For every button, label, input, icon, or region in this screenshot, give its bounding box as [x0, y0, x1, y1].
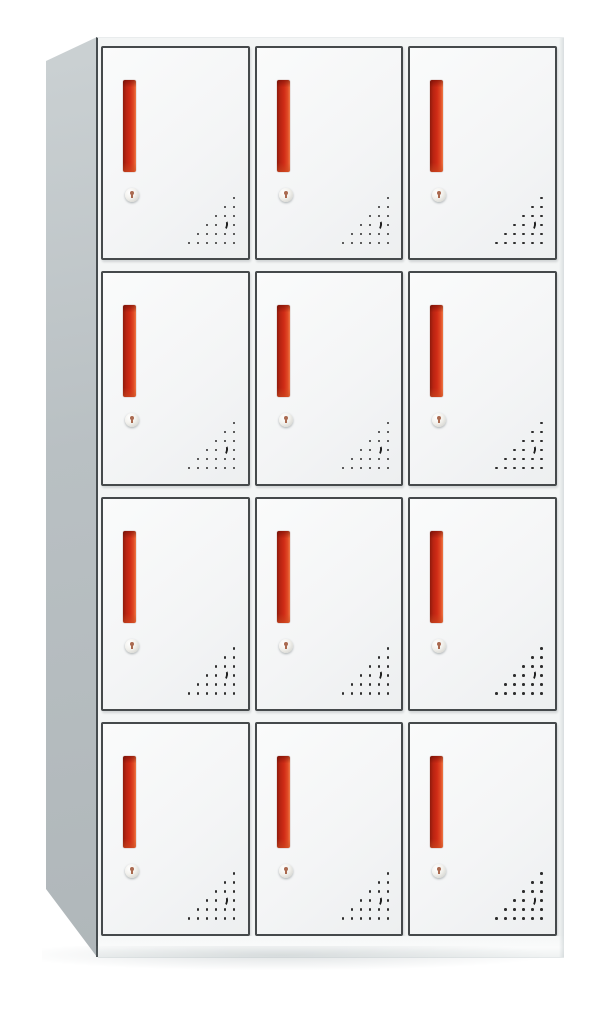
vent-hole-icon — [513, 674, 516, 677]
locker-door-r3c3 — [408, 497, 557, 711]
keyhole-lock — [279, 188, 293, 202]
vent-hole-icon — [378, 908, 381, 911]
vent-hole-icon — [233, 431, 236, 434]
vent-hole-icon — [206, 233, 209, 236]
vent-hole-icon — [360, 467, 363, 470]
vent-slot — [194, 464, 203, 473]
vent-slot — [356, 455, 365, 464]
vent-hole-icon — [387, 467, 390, 470]
vent-slot — [230, 202, 239, 211]
vent-hole-icon — [540, 440, 543, 443]
vent-slot — [347, 455, 356, 464]
vent-hole-icon — [224, 692, 227, 695]
vent-hole-icon — [378, 656, 381, 659]
keyhole-icon — [130, 416, 134, 420]
vent-hole-icon — [531, 890, 534, 893]
vent-slot — [501, 238, 510, 247]
vent-hole-icon — [215, 233, 218, 236]
vent-slot — [383, 238, 392, 247]
vent-hole-icon — [531, 908, 534, 911]
vent-row — [374, 428, 392, 437]
keyhole-icon — [437, 191, 441, 195]
vent-hole-icon — [206, 224, 209, 227]
keyhole-lock — [125, 864, 139, 878]
vent-hole-icon — [233, 206, 236, 209]
vent-slot — [194, 238, 203, 247]
vent-slot — [230, 905, 239, 914]
vent-row — [221, 202, 239, 211]
vent-slot — [221, 464, 230, 473]
vent-hole-icon — [206, 458, 209, 461]
vent-hole-icon — [215, 692, 218, 695]
vent-slot — [230, 455, 239, 464]
vent-hole-icon — [387, 431, 390, 434]
vent-hole-icon — [360, 674, 363, 677]
vent-row — [528, 653, 546, 662]
vent-row — [185, 238, 239, 247]
vent-slot — [194, 229, 203, 238]
vent-hole-icon — [387, 908, 390, 911]
keyhole-icon — [437, 867, 441, 871]
vent-slot — [374, 905, 383, 914]
vent-slot — [356, 896, 365, 905]
vent-row — [356, 446, 392, 455]
vent-row — [537, 419, 546, 428]
vent-slot — [212, 671, 221, 680]
vent-slot — [356, 220, 365, 229]
vent-row — [185, 914, 239, 923]
vent-hole-icon — [531, 242, 534, 245]
keyhole-lock — [125, 413, 139, 427]
vent-slot — [510, 689, 519, 698]
vent-hole-icon — [504, 458, 507, 461]
vent-slot — [501, 680, 510, 689]
vent-hole-icon — [233, 917, 236, 920]
vent-hole-icon — [387, 890, 390, 893]
vent-hole-icon — [522, 665, 525, 668]
vent-hole-icon — [504, 917, 507, 920]
vent-slot — [338, 464, 347, 473]
vent-row — [221, 653, 239, 662]
vent-slot — [365, 680, 374, 689]
vent-hole-icon — [233, 440, 236, 443]
product-photo-scene — [0, 0, 605, 1009]
vent-slot — [510, 220, 519, 229]
vent-slot — [519, 680, 528, 689]
vent-slot — [537, 671, 546, 680]
cabinet-front-face — [96, 37, 564, 957]
vent-slot — [501, 905, 510, 914]
vent-slot — [510, 464, 519, 473]
vent-slot — [212, 662, 221, 671]
vent-slot — [537, 653, 546, 662]
vent-hole-icon — [233, 692, 236, 695]
keyhole-icon — [437, 416, 441, 420]
vent-hole-icon — [369, 665, 372, 668]
vent-slot — [230, 644, 239, 653]
vent-slot — [212, 896, 221, 905]
vent-slot — [383, 437, 392, 446]
keyhole-icon — [284, 416, 288, 420]
vent-slot — [203, 446, 212, 455]
vent-hole-icon — [378, 890, 381, 893]
vent-row — [230, 419, 239, 428]
floor-shadow — [42, 946, 574, 972]
vent-slot — [383, 220, 392, 229]
vent-slot — [383, 914, 392, 923]
vent-slot — [374, 202, 383, 211]
vent-slot — [519, 238, 528, 247]
vent-slot — [230, 419, 239, 428]
vent-row — [221, 428, 239, 437]
vent-slot — [212, 680, 221, 689]
vent-slot — [374, 914, 383, 923]
vent-slot — [347, 464, 356, 473]
vent-row — [347, 905, 392, 914]
vent-hole-icon — [197, 458, 200, 461]
vent-hole-icon — [387, 233, 390, 236]
vent-slot — [519, 671, 528, 680]
vent-slot — [230, 896, 239, 905]
vent-hole-icon — [215, 683, 218, 686]
vent-slot — [230, 428, 239, 437]
vent-slot — [519, 689, 528, 698]
door-handle-icon — [277, 80, 290, 172]
vent-slot — [356, 905, 365, 914]
vent-hole-icon — [540, 917, 543, 920]
vent-slot — [383, 464, 392, 473]
vent-row — [203, 896, 239, 905]
vent-hole-icon — [224, 458, 227, 461]
vent-slot — [230, 446, 239, 455]
vent-slot — [230, 878, 239, 887]
vent-hole-icon — [224, 908, 227, 911]
keyhole-icon — [130, 642, 134, 646]
vent-row — [194, 455, 239, 464]
vent-hole-icon — [387, 197, 390, 200]
vent-hole-icon — [378, 467, 381, 470]
vent-row — [374, 202, 392, 211]
vent-slot — [537, 193, 546, 202]
vent-slot — [501, 229, 510, 238]
vent-hole-icon — [342, 917, 345, 920]
vent-hole-icon — [369, 449, 372, 452]
vent-hole-icon — [233, 422, 236, 425]
vent-slot — [365, 662, 374, 671]
vent-hole-icon — [351, 692, 354, 695]
vent-hole-icon — [360, 242, 363, 245]
locker-door-r4c3 — [408, 722, 557, 936]
vent-slot — [212, 464, 221, 473]
vent-hole-icon — [387, 899, 390, 902]
vent-holes — [338, 419, 392, 473]
vent-slot — [510, 914, 519, 923]
vent-hole-icon — [233, 908, 236, 911]
vent-hole-icon — [495, 692, 498, 695]
vent-slot — [230, 869, 239, 878]
vent-slot — [347, 689, 356, 698]
vent-row — [501, 455, 546, 464]
vent-hole-icon — [206, 242, 209, 245]
vent-hole-icon — [224, 683, 227, 686]
vent-row — [501, 229, 546, 238]
vent-slot — [212, 887, 221, 896]
vent-slot — [194, 455, 203, 464]
vent-slot — [383, 869, 392, 878]
vent-hole-icon — [522, 908, 525, 911]
vent-hole-icon — [540, 449, 543, 452]
vent-slot — [510, 905, 519, 914]
vent-row — [510, 896, 546, 905]
vent-hole-icon — [233, 683, 236, 686]
vent-slot — [365, 220, 374, 229]
vent-slot — [510, 671, 519, 680]
vent-hole-icon — [233, 899, 236, 902]
vent-slot — [528, 446, 537, 455]
door-handle-icon — [123, 756, 136, 848]
locker-door-r2c1 — [101, 271, 250, 485]
vent-hole-icon — [387, 440, 390, 443]
vent-slot — [383, 446, 392, 455]
vent-slot — [374, 689, 383, 698]
vent-holes — [338, 869, 392, 923]
vent-slot — [203, 229, 212, 238]
vent-hole-icon — [215, 440, 218, 443]
vent-row — [501, 905, 546, 914]
vent-hole-icon — [224, 881, 227, 884]
vent-slot — [365, 671, 374, 680]
vent-hole-icon — [522, 440, 525, 443]
vent-hole-icon — [540, 422, 543, 425]
door-handle-icon — [123, 80, 136, 172]
vent-slot — [383, 689, 392, 698]
vent-slot — [528, 905, 537, 914]
vent-hole-icon — [540, 233, 543, 236]
vent-hole-icon — [233, 665, 236, 668]
vent-row — [356, 671, 392, 680]
vent-slot — [230, 437, 239, 446]
vent-slot — [338, 238, 347, 247]
vent-row — [347, 455, 392, 464]
vent-hole-icon — [369, 233, 372, 236]
vent-row — [374, 653, 392, 662]
vent-hole-icon — [206, 899, 209, 902]
vent-slot — [347, 680, 356, 689]
vent-hole-icon — [531, 206, 534, 209]
vent-row — [492, 689, 546, 698]
vent-slot — [501, 464, 510, 473]
vent-hole-icon — [233, 449, 236, 452]
vent-slot — [221, 896, 230, 905]
vent-slot — [230, 211, 239, 220]
vent-row — [383, 869, 392, 878]
vent-row — [365, 211, 392, 220]
vent-slot — [221, 446, 230, 455]
vent-hole-icon — [495, 467, 498, 470]
vent-slot — [510, 680, 519, 689]
vent-hole-icon — [540, 215, 543, 218]
vent-slot — [519, 887, 528, 896]
vent-hole-icon — [233, 872, 236, 875]
vent-slot — [221, 229, 230, 238]
vent-holes — [338, 644, 392, 698]
vent-hole-icon — [522, 692, 525, 695]
vent-holes — [492, 644, 546, 698]
vent-hole-icon — [233, 881, 236, 884]
vent-slot — [528, 914, 537, 923]
vent-hole-icon — [540, 656, 543, 659]
door-handle-icon — [277, 756, 290, 848]
vent-slot — [194, 689, 203, 698]
vent-holes — [185, 419, 239, 473]
vent-slot — [528, 238, 537, 247]
vent-row — [194, 680, 239, 689]
vent-slot — [519, 455, 528, 464]
vent-row — [528, 428, 546, 437]
vent-hole-icon — [387, 674, 390, 677]
vent-slot — [194, 905, 203, 914]
vent-row — [519, 887, 546, 896]
vent-hole-icon — [387, 422, 390, 425]
keyhole-icon — [437, 642, 441, 646]
vent-hole-icon — [540, 458, 543, 461]
vent-slot — [365, 464, 374, 473]
vent-slot — [356, 914, 365, 923]
vent-slot — [537, 419, 546, 428]
vent-slot — [510, 229, 519, 238]
vent-hole-icon — [387, 692, 390, 695]
vent-hole-icon — [387, 872, 390, 875]
vent-hole-icon — [522, 449, 525, 452]
vent-hole-icon — [540, 890, 543, 893]
vent-hole-icon — [495, 242, 498, 245]
vent-slot — [347, 229, 356, 238]
vent-hole-icon — [513, 908, 516, 911]
vent-hole-icon — [188, 467, 191, 470]
vent-slot — [374, 229, 383, 238]
vent-hole-icon — [504, 908, 507, 911]
vent-hole-icon — [540, 431, 543, 434]
vent-row — [492, 914, 546, 923]
vent-hole-icon — [531, 656, 534, 659]
vent-slot — [374, 887, 383, 896]
vent-hole-icon — [351, 458, 354, 461]
vent-slot — [501, 455, 510, 464]
vent-slot — [221, 211, 230, 220]
vent-row — [492, 238, 546, 247]
vent-hole-icon — [206, 467, 209, 470]
vent-slot — [528, 464, 537, 473]
vent-holes — [492, 193, 546, 247]
vent-hole-icon — [233, 656, 236, 659]
vent-hole-icon — [522, 899, 525, 902]
vent-hole-icon — [513, 242, 516, 245]
locker-door-r2c2 — [255, 271, 404, 485]
keyhole-icon — [284, 867, 288, 871]
vent-slot — [221, 878, 230, 887]
vent-hole-icon — [360, 224, 363, 227]
vent-hole-icon — [540, 872, 543, 875]
vent-hole-icon — [197, 242, 200, 245]
vent-hole-icon — [351, 467, 354, 470]
vent-slot — [383, 896, 392, 905]
vent-hole-icon — [233, 224, 236, 227]
vent-hole-icon — [540, 899, 543, 902]
keyhole-lock — [432, 188, 446, 202]
vent-slot — [537, 437, 546, 446]
vent-hole-icon — [233, 647, 236, 650]
vent-slot — [365, 446, 374, 455]
vent-hole-icon — [215, 467, 218, 470]
vent-hole-icon — [206, 683, 209, 686]
vent-hole-icon — [342, 692, 345, 695]
keyhole-icon — [284, 191, 288, 195]
vent-hole-icon — [215, 449, 218, 452]
vent-row — [203, 671, 239, 680]
vent-holes — [185, 193, 239, 247]
vent-hole-icon — [504, 683, 507, 686]
vent-slot — [221, 455, 230, 464]
vent-slot — [212, 446, 221, 455]
vent-slot — [212, 905, 221, 914]
vent-hole-icon — [215, 215, 218, 218]
locker-door-r4c2 — [255, 722, 404, 936]
vent-row — [510, 446, 546, 455]
keyhole-lock — [279, 864, 293, 878]
vent-hole-icon — [504, 692, 507, 695]
vent-row — [356, 896, 392, 905]
vent-slot — [383, 905, 392, 914]
vent-hole-icon — [513, 233, 516, 236]
vent-slot — [537, 220, 546, 229]
vent-slot — [374, 220, 383, 229]
keyhole-lock — [432, 639, 446, 653]
vent-hole-icon — [233, 215, 236, 218]
vent-row — [203, 220, 239, 229]
vent-hole-icon — [378, 881, 381, 884]
vent-slot — [374, 211, 383, 220]
vent-slot — [185, 914, 194, 923]
vent-hole-icon — [215, 665, 218, 668]
vent-row — [374, 878, 392, 887]
vent-hole-icon — [197, 908, 200, 911]
vent-slot — [221, 238, 230, 247]
vent-hole-icon — [540, 467, 543, 470]
vent-row — [338, 914, 392, 923]
door-handle-icon — [277, 305, 290, 397]
vent-slot — [374, 455, 383, 464]
vent-slot — [221, 202, 230, 211]
vent-slot — [537, 428, 546, 437]
vent-hole-icon — [233, 674, 236, 677]
vent-hole-icon — [387, 224, 390, 227]
vent-hole-icon — [188, 692, 191, 695]
vent-hole-icon — [197, 683, 200, 686]
vent-row — [537, 644, 546, 653]
vent-hole-icon — [215, 899, 218, 902]
vent-slot — [203, 238, 212, 247]
vent-slot — [221, 914, 230, 923]
vent-slot — [383, 455, 392, 464]
vent-hole-icon — [387, 215, 390, 218]
vent-slot — [519, 229, 528, 238]
vent-hole-icon — [513, 692, 516, 695]
vent-hole-icon — [215, 674, 218, 677]
vent-hole-icon — [224, 665, 227, 668]
vent-holes — [185, 644, 239, 698]
vent-slot — [338, 689, 347, 698]
vent-slot — [356, 689, 365, 698]
